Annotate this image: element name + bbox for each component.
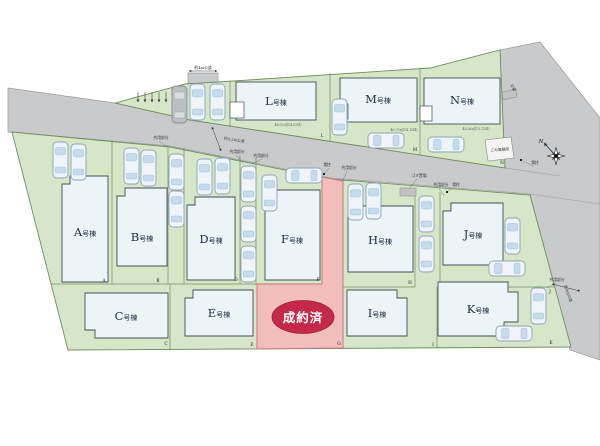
svg-text:B: B [156, 279, 159, 284]
building-B [117, 188, 167, 266]
car [286, 168, 322, 183]
road-label-top-stub: 約4m公道 [194, 65, 212, 70]
site-plan-image: 成約済 A号棟 B号棟 C号棟 D号棟 E号棟 F号棟 H号棟 I号棟 J号棟 … [0, 0, 600, 446]
car [215, 158, 230, 194]
car [262, 175, 277, 211]
car [496, 326, 532, 341]
car [169, 191, 184, 227]
car [332, 99, 347, 135]
svg-text:M: M [413, 148, 418, 153]
label-H: H [368, 233, 378, 247]
car [197, 159, 212, 195]
building-A [62, 176, 108, 282]
car [210, 84, 225, 120]
garbage-box-label: ゴミ置場 [411, 173, 426, 178]
svg-text:N: N [500, 161, 504, 166]
sold-badge-label: 成約済 [283, 310, 324, 325]
svg-text:電柱: 電柱 [323, 162, 331, 167]
svg-text:L: L [321, 134, 324, 139]
car [419, 236, 434, 272]
car [241, 246, 256, 282]
car [141, 150, 156, 186]
porch-N [420, 106, 432, 121]
svg-text:G: G [337, 342, 341, 347]
svg-text:46.79㎡(14.15坪): 46.79㎡(14.15坪) [390, 127, 417, 132]
car [124, 148, 139, 184]
svg-text:共用部分: 共用部分 [153, 135, 168, 140]
svg-text:電柱: 電柱 [452, 182, 460, 187]
label-M: M [365, 92, 377, 106]
car [190, 84, 205, 120]
car [241, 166, 256, 202]
svg-text:46.05㎡(14.02坪): 46.05㎡(14.02坪) [274, 122, 301, 127]
car [489, 261, 525, 276]
svg-text:共用部分: 共用部分 [253, 153, 268, 158]
car [531, 288, 546, 324]
svg-text:H: H [408, 281, 412, 286]
car [368, 133, 404, 148]
car [366, 183, 381, 219]
car [53, 142, 68, 178]
svg-text:45.36㎡(13.72坪): 45.36㎡(13.72坪) [462, 126, 489, 131]
porch-L [230, 102, 244, 118]
label-E: E [208, 306, 216, 320]
svg-text:共用部分: 共用部分 [341, 165, 356, 170]
car-gray [172, 86, 187, 123]
north-label: N [538, 139, 544, 145]
label-D: D [199, 232, 208, 246]
car [348, 184, 363, 220]
svg-text:D: D [234, 278, 238, 283]
svg-text:I: I [432, 343, 434, 348]
label-F: F [281, 232, 289, 246]
car [428, 137, 464, 152]
svg-text:電柱: 電柱 [531, 160, 539, 165]
label-B: B [131, 230, 139, 244]
svg-text:共用部分: 共用部分 [549, 277, 564, 282]
label-C: C [115, 309, 124, 323]
label-N: N [450, 93, 460, 107]
garbage-box [400, 188, 416, 196]
car [241, 206, 256, 242]
svg-text:J: J [548, 290, 551, 295]
car [419, 196, 434, 232]
car [505, 218, 520, 254]
car [71, 144, 86, 180]
site-plan-svg: 成約済 A号棟 B号棟 C号棟 D号棟 E号棟 F号棟 H号棟 I号棟 J号棟 … [0, 0, 600, 446]
svg-text:E: E [250, 343, 253, 348]
car [169, 154, 184, 190]
svg-text:F: F [317, 278, 320, 283]
svg-text:共用部分: 共用部分 [433, 182, 448, 187]
svg-text:共用部分: 共用部分 [229, 149, 244, 154]
